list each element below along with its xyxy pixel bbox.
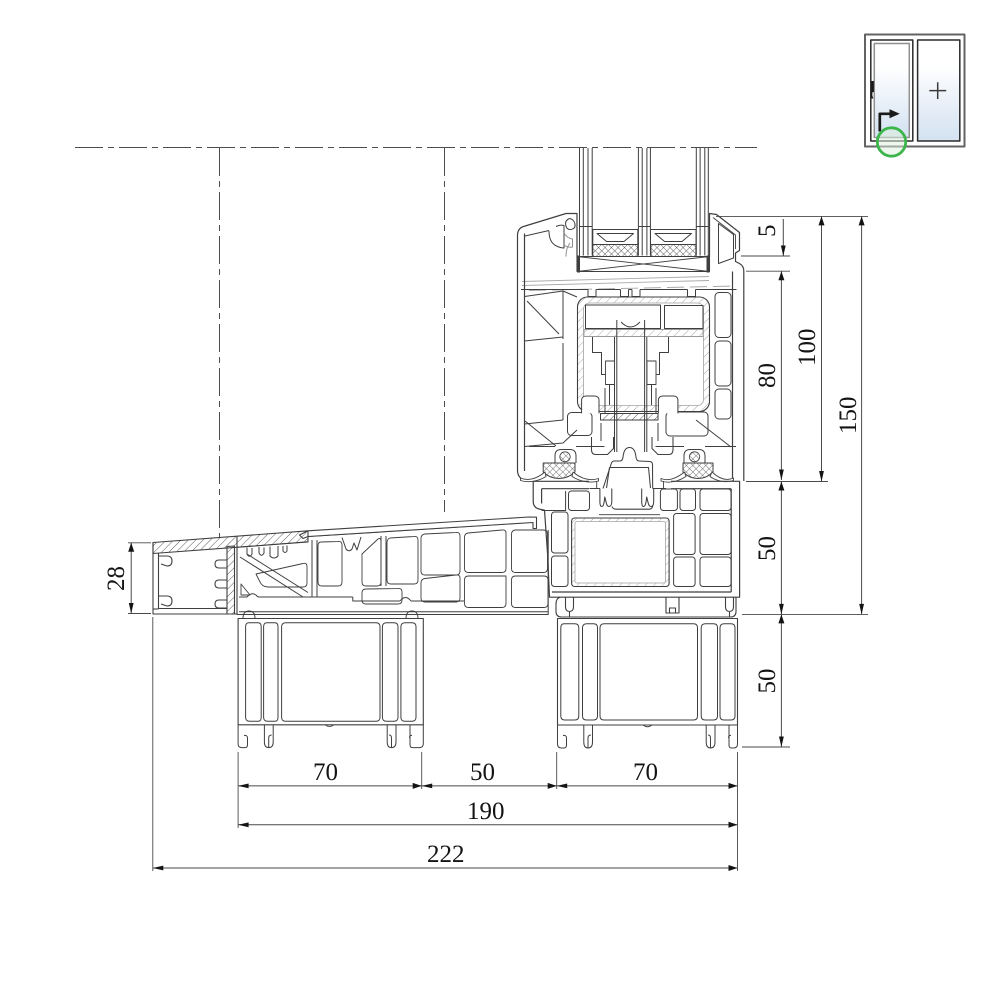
svg-text:70: 70 bbox=[313, 759, 338, 786]
svg-text:50: 50 bbox=[754, 669, 781, 694]
svg-text:28: 28 bbox=[103, 566, 130, 591]
svg-text:70: 70 bbox=[633, 759, 658, 786]
svg-text:100: 100 bbox=[794, 329, 821, 367]
svg-text:50: 50 bbox=[754, 536, 781, 561]
svg-text:50: 50 bbox=[470, 759, 495, 786]
svg-text:222: 222 bbox=[427, 841, 465, 868]
svg-text:5: 5 bbox=[754, 225, 781, 238]
svg-text:80: 80 bbox=[754, 363, 781, 388]
svg-text:190: 190 bbox=[467, 798, 505, 825]
svg-text:150: 150 bbox=[835, 397, 862, 435]
